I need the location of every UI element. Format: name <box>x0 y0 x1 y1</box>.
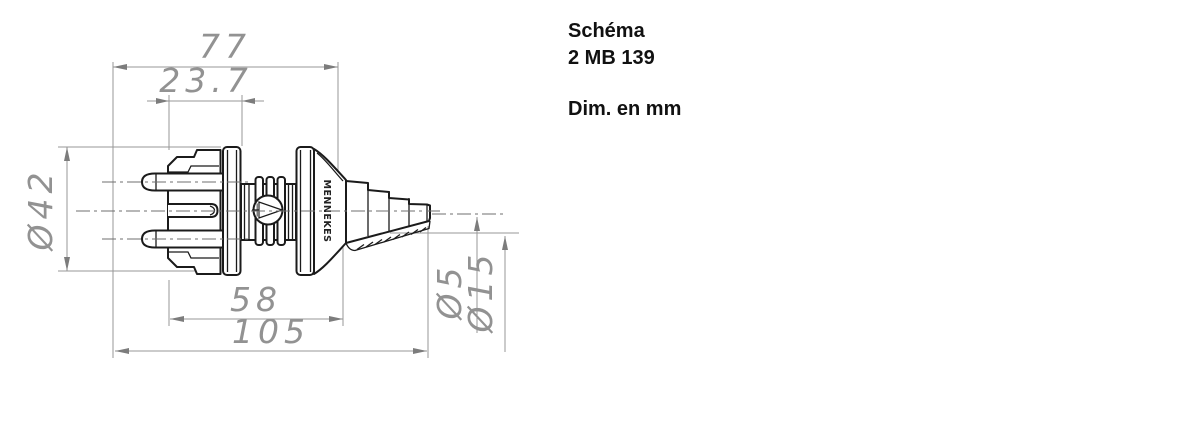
dimension-dia15-label: Ø15 <box>461 250 500 335</box>
dimension-23_7-label: 23.7 <box>159 61 252 100</box>
schema-number: 2 MB 139 <box>568 46 655 70</box>
cable-gland-cone <box>346 181 430 243</box>
units-note: Dim. en mm <box>568 97 681 121</box>
dimension-dia42-label: Ø42 <box>21 168 60 253</box>
schema-title: Schéma <box>568 19 645 43</box>
dimension-105-label: 105 <box>232 312 310 351</box>
page: MENNEKES 77 23.7 Ø42 58 105 Ø5 Ø15 S <box>0 0 1200 427</box>
